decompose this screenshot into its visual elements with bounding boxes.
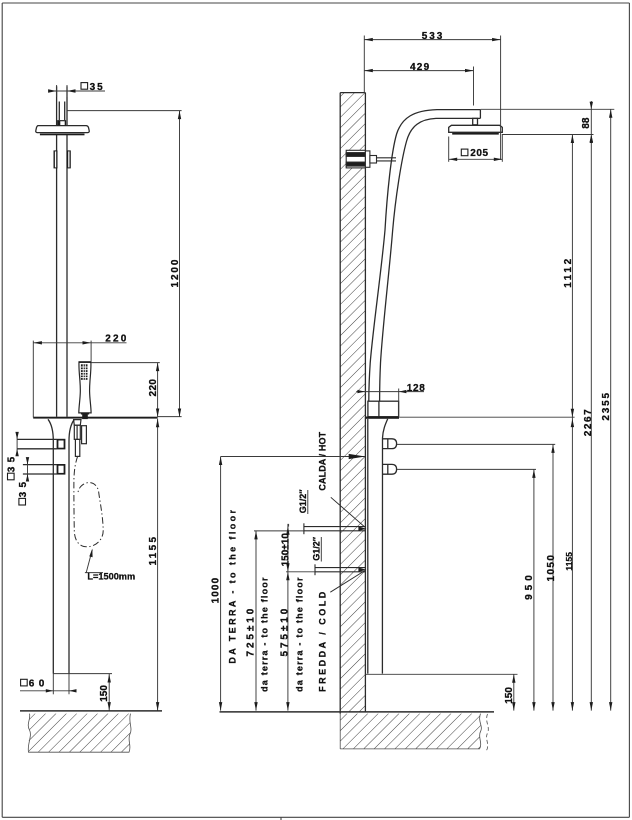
- svg-text:1000: 1000: [210, 577, 221, 604]
- svg-text:35: 35: [18, 477, 29, 497]
- svg-text:60: 60: [29, 678, 49, 689]
- svg-text:35: 35: [6, 452, 17, 472]
- svg-text:150±10: 150±10: [280, 533, 291, 567]
- svg-text:L=1500mm: L=1500mm: [87, 572, 135, 582]
- svg-text:DA TERRA - to the floor: DA TERRA - to the floor: [227, 508, 237, 664]
- svg-text:128: 128: [407, 383, 426, 394]
- svg-text:725±10: 725±10: [246, 606, 257, 657]
- svg-text:G1/2″: G1/2″: [312, 536, 322, 561]
- svg-text:533: 533: [422, 31, 444, 42]
- svg-text:88: 88: [581, 117, 592, 129]
- svg-text:CALDA / HOT: CALDA / HOT: [318, 431, 328, 490]
- svg-text:150: 150: [504, 687, 515, 704]
- svg-text:1155: 1155: [148, 535, 159, 566]
- svg-text:1155: 1155: [564, 552, 574, 571]
- svg-text:150: 150: [99, 685, 110, 702]
- svg-text:205: 205: [470, 148, 489, 159]
- svg-text:1112: 1112: [563, 256, 574, 288]
- svg-text:FREDDA / COLD: FREDDA / COLD: [318, 589, 328, 692]
- svg-text:220: 220: [105, 334, 128, 345]
- svg-text:G1/2″: G1/2″: [298, 489, 308, 514]
- svg-text:950: 950: [524, 571, 535, 600]
- svg-text:da terra - to the floor: da terra - to the floor: [295, 576, 305, 692]
- svg-text:2355: 2355: [601, 391, 612, 420]
- svg-text:2267: 2267: [583, 408, 594, 437]
- svg-text:429: 429: [410, 62, 430, 73]
- svg-text:575±10: 575±10: [279, 606, 290, 657]
- svg-text:1200: 1200: [170, 258, 181, 288]
- svg-text:da terra - to the floor: da terra - to the floor: [259, 576, 269, 692]
- svg-text:1050: 1050: [546, 554, 557, 582]
- svg-text:35: 35: [90, 82, 105, 93]
- svg-text:220: 220: [148, 379, 159, 397]
